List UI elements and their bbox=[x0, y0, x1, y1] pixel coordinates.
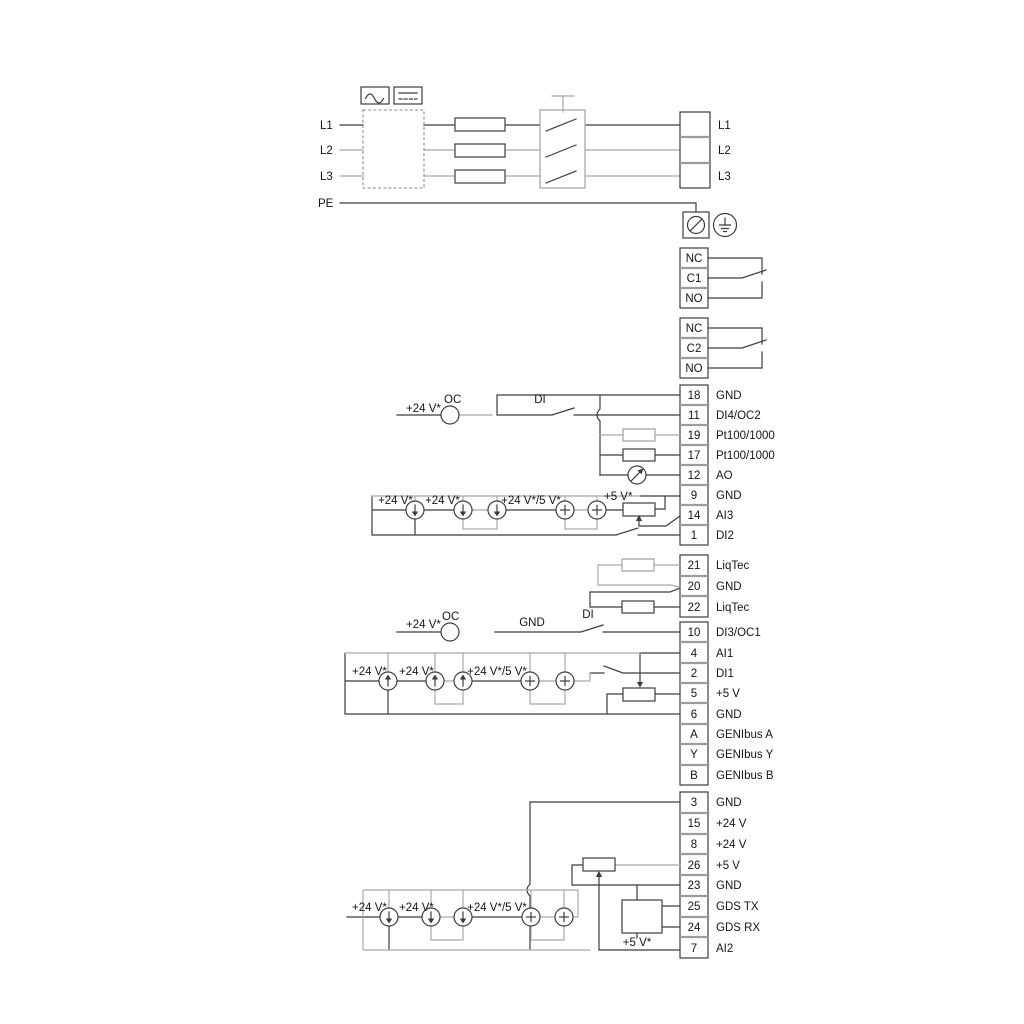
terminal-number: 17 bbox=[688, 450, 701, 462]
voltage-source-plus-icon bbox=[556, 672, 574, 690]
earth-terminals bbox=[683, 212, 737, 238]
terminal-label: AO bbox=[716, 470, 733, 482]
analog-output-meter-icon bbox=[628, 466, 646, 484]
terminal-number: 22 bbox=[688, 602, 701, 614]
supply-label: +24 V*/5 V* bbox=[501, 495, 561, 507]
terminal-number: 20 bbox=[688, 581, 701, 593]
phase-label-l1: L1 bbox=[320, 120, 333, 132]
supply-label: +24 V* bbox=[425, 495, 460, 507]
potentiometer-wiper-arrow bbox=[596, 871, 602, 877]
terminal-number: Y bbox=[690, 749, 698, 761]
rcd-type-ac-icon bbox=[361, 87, 389, 104]
phase-wires-black bbox=[340, 125, 696, 212]
liqtec-sensor-symbol bbox=[622, 559, 654, 571]
terminal-number: 25 bbox=[688, 901, 701, 913]
relay-1: NC C1 NO bbox=[680, 248, 766, 308]
terminal-label: GND bbox=[716, 581, 742, 593]
terminal-label: DI4/OC2 bbox=[716, 410, 761, 422]
terminal-number: 21 bbox=[688, 560, 701, 572]
pt100-sensor-symbol bbox=[623, 449, 655, 461]
terminal-number: 11 bbox=[688, 410, 700, 422]
terminal-number: 26 bbox=[688, 860, 701, 872]
wiring-diagram: L1 L2 L3 PE L1 L2 L3 bbox=[0, 0, 1024, 1024]
out-label-l2: L2 bbox=[718, 145, 731, 157]
terminal-number: 14 bbox=[688, 510, 701, 522]
terminal-number: 9 bbox=[691, 490, 697, 502]
supply-label: +24 V* bbox=[399, 902, 434, 914]
supply-label: +5 V* bbox=[623, 937, 652, 949]
terminal-label: AI3 bbox=[716, 510, 733, 522]
terminal-number: 1 bbox=[691, 530, 697, 542]
rcd-dashed-box bbox=[363, 110, 424, 188]
supply-label: +24 V*/5 V* bbox=[467, 902, 527, 914]
power-input-section: L1 L2 L3 PE L1 L2 L3 bbox=[318, 87, 737, 238]
terminal-label: +24 V bbox=[716, 839, 747, 851]
relay1-contact-wires bbox=[708, 258, 766, 298]
terminal-label: AI2 bbox=[716, 943, 733, 955]
relay2-no: NO bbox=[685, 363, 702, 375]
potentiometer-symbol bbox=[623, 503, 655, 516]
relay2-nc: NC bbox=[686, 323, 703, 335]
open-collector-label: OC bbox=[444, 394, 461, 406]
terminal-label: +5 V bbox=[716, 860, 740, 872]
terminal-block-outline bbox=[680, 112, 710, 188]
terminal-label: +24 V bbox=[716, 818, 747, 830]
supply-label: +24 V* bbox=[352, 902, 387, 914]
wiper-arrow-down bbox=[637, 682, 643, 688]
strip2-circuitry: +24 V* OC GND DI +24 V* +24 V* +24 V*/5 … bbox=[345, 609, 680, 714]
relay2-c2: C2 bbox=[687, 343, 702, 355]
phase-label-pe: PE bbox=[318, 198, 334, 210]
terminal-label: DI2 bbox=[716, 530, 734, 542]
fuse-symbols bbox=[455, 118, 505, 183]
terminal-label: Pt100/1000 bbox=[716, 450, 775, 462]
terminal-number: 15 bbox=[688, 818, 701, 830]
terminal-number: 18 bbox=[688, 390, 701, 402]
out-label-l1: L1 bbox=[718, 120, 731, 132]
ground-label: GND bbox=[519, 617, 545, 629]
terminal-label: GND bbox=[716, 880, 742, 892]
rcd-type-dc-icon bbox=[394, 87, 422, 104]
potentiometer-symbol bbox=[583, 858, 615, 871]
terminal-label: GENIbus Y bbox=[716, 749, 774, 761]
fuse-l2 bbox=[455, 144, 505, 157]
terminal-number: A bbox=[690, 729, 698, 741]
terminal-number: 6 bbox=[691, 709, 697, 721]
terminal-label: GND bbox=[716, 390, 742, 402]
terminal-number: 4 bbox=[691, 648, 698, 660]
terminal-label: GDS TX bbox=[716, 901, 759, 913]
relay2-contact-wires bbox=[708, 328, 766, 368]
terminal-number: 5 bbox=[691, 688, 697, 700]
relay1-nc: NC bbox=[686, 253, 703, 265]
terminal-label: GND bbox=[716, 709, 742, 721]
supply-label: +24 V*/5 V* bbox=[467, 666, 527, 678]
relay1-no: NO bbox=[685, 293, 702, 305]
terminal-label: GENIbus B bbox=[716, 770, 774, 782]
gnd-drop-with-hop bbox=[527, 802, 530, 950]
supply-label: +24 V* bbox=[406, 619, 441, 631]
relay-2: NC C2 NO bbox=[680, 318, 766, 378]
terminal-number: 24 bbox=[688, 922, 701, 934]
supply-label: +24 V* bbox=[399, 666, 434, 678]
power-output-terminal-block: L1 L2 L3 bbox=[680, 112, 731, 188]
digital-input-label: DI bbox=[582, 609, 594, 621]
potentiometer-symbol bbox=[623, 688, 655, 701]
terminal-label: DI1 bbox=[716, 668, 734, 680]
terminal-number: 2 bbox=[691, 668, 697, 680]
supply-label: +5 V* bbox=[604, 491, 633, 503]
strip3-circuitry: +5 V* +24 V* +24 V* +24 V*/5 V* bbox=[347, 802, 680, 950]
supply-label: +24 V* bbox=[406, 403, 441, 415]
terminal-strip-3: 3GND 15+24 V 8+24 V 26+5 V 23GND 25GDS T… bbox=[680, 792, 760, 958]
terminal-label: LiqTec bbox=[716, 560, 749, 572]
terminal-label: +5 V bbox=[716, 688, 740, 700]
terminal-label: GENIbus A bbox=[716, 729, 773, 741]
terminal-number: 23 bbox=[688, 880, 701, 892]
pt100-sensor-symbol bbox=[623, 429, 655, 441]
phase-wires-gray bbox=[340, 150, 680, 176]
open-collector-label: OC bbox=[442, 611, 459, 623]
relay1-c1: C1 bbox=[687, 273, 702, 285]
terminal-label: LiqTec bbox=[716, 602, 749, 614]
terminal-label: GDS RX bbox=[716, 922, 760, 934]
terminal-number: 3 bbox=[691, 797, 697, 809]
terminal-number: 7 bbox=[691, 943, 697, 955]
wiring-diagram-page: L1 L2 L3 PE L1 L2 L3 bbox=[0, 0, 1024, 1024]
fuse-l3 bbox=[455, 170, 505, 183]
voltage-source-plus-icon bbox=[588, 501, 606, 519]
gds-sensor-box bbox=[622, 900, 662, 933]
open-collector-icon bbox=[441, 406, 459, 424]
terminal-strip-1: 18GND 11DI4/OC2 19Pt100/1000 17Pt100/100… bbox=[680, 385, 775, 545]
terminal-label: GND bbox=[716, 490, 742, 502]
terminal-number: 8 bbox=[691, 839, 697, 851]
terminal-number: 19 bbox=[688, 430, 701, 442]
voltage-source-plus-icon bbox=[555, 908, 573, 926]
terminal-label: GND bbox=[716, 797, 742, 809]
liqtec-terminal-block: 21LiqTec 20GND 22LiqTec bbox=[590, 555, 749, 617]
liqtec-sensor-symbol bbox=[622, 601, 654, 613]
terminal-number: 12 bbox=[688, 470, 701, 482]
strip1-circuitry: +24 V* OC DI +24 V* +24 V* +24 V*/5 V* +… bbox=[372, 394, 680, 535]
out-label-l3: L3 bbox=[718, 171, 731, 183]
supply-label: +24 V* bbox=[352, 666, 387, 678]
terminal-number: B bbox=[690, 770, 698, 782]
contactor-symbol bbox=[540, 96, 585, 188]
digital-input-label: DI bbox=[534, 394, 546, 406]
open-collector-icon bbox=[441, 623, 459, 641]
terminal-label: Pt100/1000 bbox=[716, 430, 775, 442]
phase-label-l2: L2 bbox=[320, 145, 333, 157]
terminal-number: 10 bbox=[688, 627, 701, 639]
phase-label-l3: L3 bbox=[320, 171, 333, 183]
fuse-l1 bbox=[455, 118, 505, 131]
terminal-label: AI1 bbox=[716, 648, 733, 660]
terminal-strip-2: 10DI3/OC1 4AI1 2DI1 5+5 V 6GND AGENIbus … bbox=[680, 622, 774, 785]
terminal-label: DI3/OC1 bbox=[716, 627, 761, 639]
supply-label: +24 V* bbox=[378, 495, 413, 507]
